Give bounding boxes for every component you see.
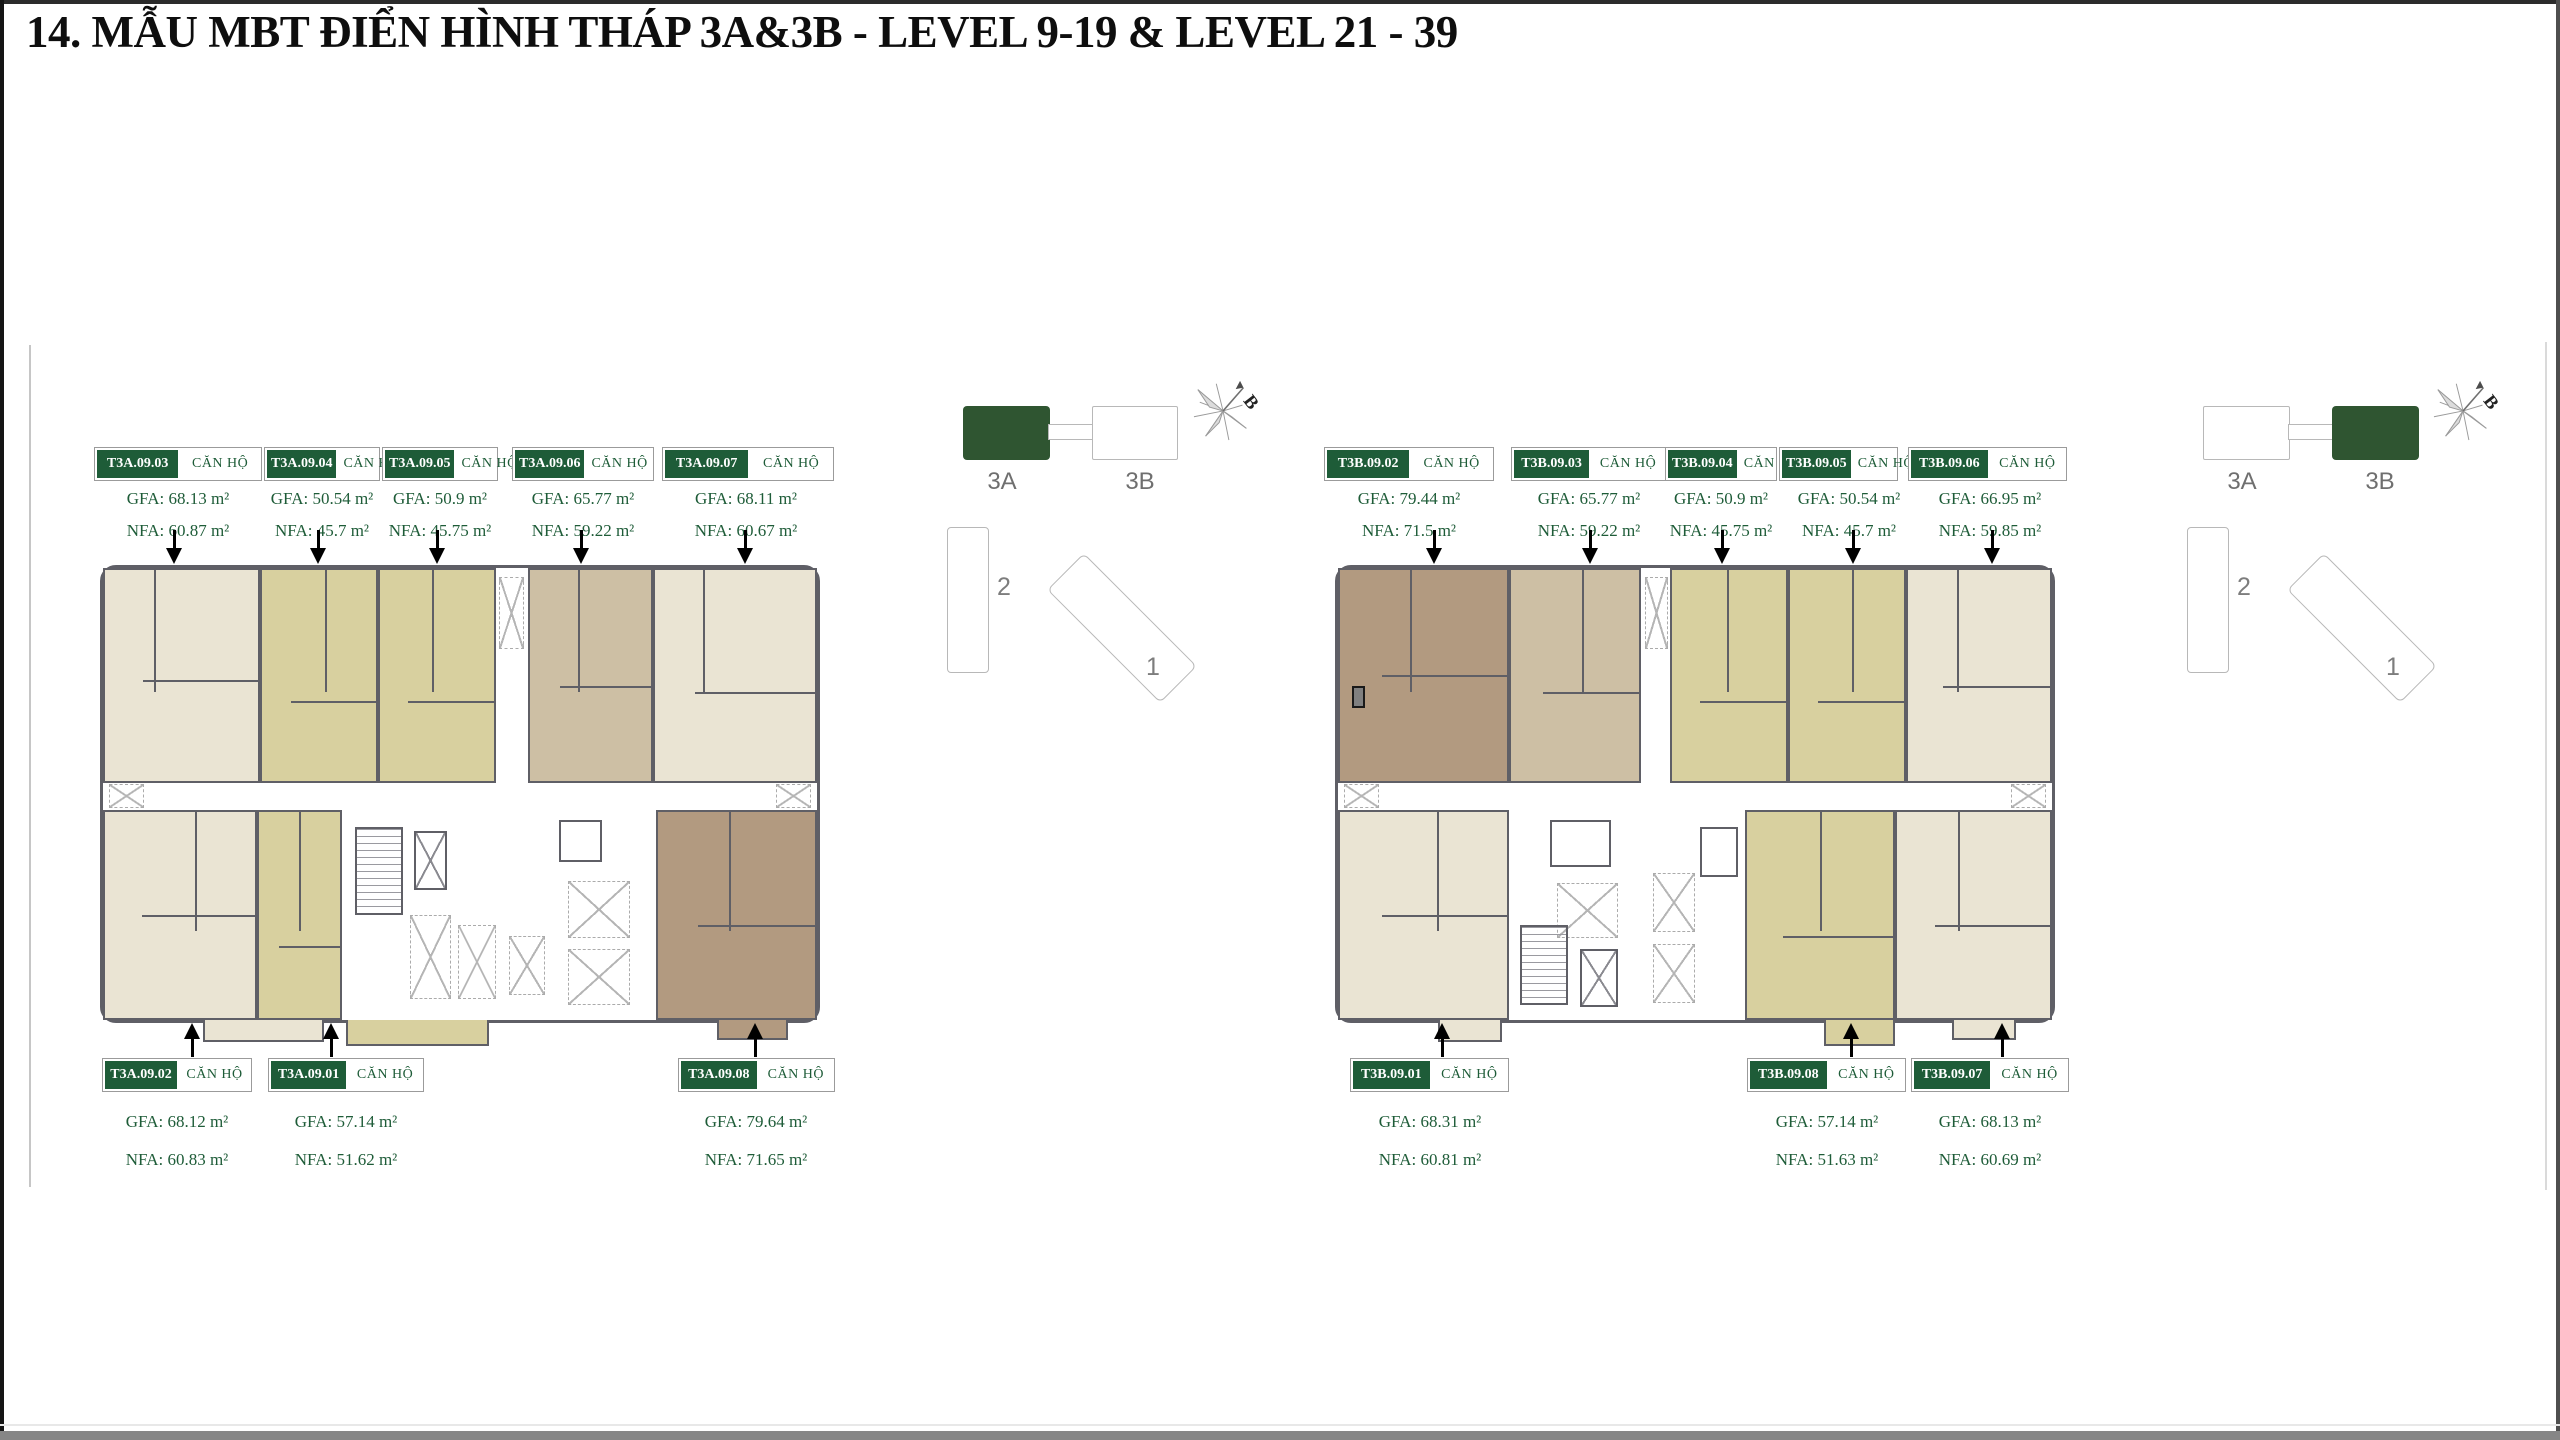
unit-region-t3b-09-05 — [1788, 568, 1906, 783]
service-box — [1550, 820, 1611, 866]
unit-code: T3B.09.07 — [1914, 1061, 1990, 1089]
shaft-icon — [499, 577, 524, 649]
corridor — [103, 783, 817, 810]
keyplan-label-2: 2 — [2237, 573, 2251, 602]
unit-code: T3A.09.02 — [105, 1061, 177, 1089]
unit-nfa: NFA: 59.22 m² — [532, 521, 635, 541]
service-box — [559, 820, 602, 862]
compass-north-label: B — [1240, 391, 1263, 413]
unit-nfa: NFA: 51.62 m² — [295, 1150, 398, 1170]
unit-region-t3a-09-07 — [653, 568, 817, 783]
compass-icon: B — [1186, 376, 1264, 442]
unit-chip-t3a-09-02: T3A.09.02 CĂN HỘ — [102, 1058, 252, 1092]
elevator-shaft-icon — [414, 831, 446, 890]
unit-type-label: CĂN HỘ — [1993, 1061, 2066, 1089]
core-area — [342, 810, 503, 1020]
unit-chip-t3a-09-07: T3A.09.07 CĂN HỘ — [662, 447, 834, 481]
keyplan-label-1: 1 — [2386, 653, 2400, 682]
unit-region-t3b-09-02 — [1338, 568, 1509, 783]
unit-gfa: GFA: 68.31 m² — [1379, 1112, 1482, 1132]
unit-chip-t3b-09-06: T3B.09.06 CĂN HỘ — [1908, 447, 2067, 481]
unit-chip-t3b-09-02: T3B.09.02 CĂN HỘ — [1324, 447, 1494, 481]
floorplan-3b — [1335, 565, 2055, 1023]
unit-gfa: GFA: 65.77 m² — [1538, 489, 1641, 509]
unit-chip-t3b-09-07: T3B.09.07 CĂN HỘ — [1911, 1058, 2069, 1092]
frame-top-border — [0, 0, 2560, 4]
core-area — [553, 810, 657, 1020]
sheet-divider-right — [2545, 342, 2547, 1190]
unit-gfa: GFA: 65.77 m² — [532, 489, 635, 509]
unit-region-t3a-09-05 — [378, 568, 496, 783]
unit-nfa: NFA: 60.83 m² — [126, 1150, 229, 1170]
keyplan-connector — [2288, 424, 2334, 440]
shaft-icon — [1653, 944, 1695, 1003]
unit-gfa: GFA: 57.14 m² — [1776, 1112, 1879, 1132]
unit-code: T3A.09.04 — [267, 450, 336, 478]
keyplan-building-1-outline — [1047, 553, 1197, 703]
unit-code: T3A.09.01 — [271, 1061, 346, 1089]
unit-type-label: CĂN HỘ — [1991, 450, 2064, 478]
unit-nfa: NFA: 45.7 m² — [1802, 521, 1896, 541]
unit-type-label: CĂN HỘ — [181, 450, 259, 478]
unit-gfa: GFA: 68.13 m² — [127, 489, 230, 509]
compass-north-label: B — [2480, 391, 2503, 413]
unit-nfa: NFA: 71.65 m² — [705, 1150, 808, 1170]
balcony-tab — [1824, 1020, 1895, 1046]
corridor-end-icon — [776, 784, 812, 808]
unit-type-label: CĂN HỘ — [751, 450, 831, 478]
unit-region-t3a-09-01 — [257, 810, 343, 1020]
unit-gfa: GFA: 50.9 m² — [1674, 489, 1768, 509]
keyplan-label-3a: 3A — [2227, 468, 2256, 496]
unit-type-label: CĂN HỘ — [1433, 1061, 1506, 1089]
sheet-divider-left — [29, 345, 31, 1187]
unit-region-t3a-09-08 — [656, 810, 817, 1020]
unit-region-t3b-09-06 — [1906, 568, 2052, 783]
unit-code: T3A.09.03 — [97, 450, 178, 478]
keyplan-label-3b: 3B — [1125, 468, 1154, 496]
unit-region-t3b-09-04 — [1670, 568, 1788, 783]
unit-region-t3a-09-06 — [528, 568, 653, 783]
unit-type-label: CĂN HỘ — [1830, 1061, 1903, 1089]
unit-code: T3B.09.06 — [1911, 450, 1988, 478]
unit-gfa: GFA: 50.54 m² — [1798, 489, 1901, 509]
corridor-end-icon — [1344, 784, 1380, 808]
unit-gfa: GFA: 66.95 m² — [1939, 489, 2042, 509]
floorplan-sheet: 14. MẪU MBT ĐIỂN HÌNH THÁP 3A&3B - LEVEL… — [0, 0, 2560, 1440]
unit-nfa: NFA: 45.75 m² — [389, 521, 492, 541]
unit-type-label: CĂN HỘ — [1412, 450, 1491, 478]
unit-region-t3a-09-02 — [103, 810, 257, 1020]
shaft-icon — [458, 925, 497, 999]
unit-code: T3B.09.01 — [1353, 1061, 1430, 1089]
unit-chip-t3a-09-04: T3A.09.04 CĂN HỘ — [264, 447, 380, 481]
unit-nfa: NFA: 59.85 m² — [1939, 521, 2042, 541]
keyplan-tower-3a-outline — [2203, 406, 2290, 460]
keyplan-tower-3b-outline — [1092, 406, 1178, 460]
shaft-icon — [1653, 873, 1695, 932]
frame-bottom-border — [0, 1431, 2560, 1440]
unit-gfa: GFA: 68.13 m² — [1939, 1112, 2042, 1132]
frame-right-border — [2556, 0, 2560, 1440]
unit-region-t3b-09-08 — [1745, 810, 1895, 1020]
unit-gfa: GFA: 68.12 m² — [126, 1112, 229, 1132]
keyplan-tower-3a-highlight — [963, 406, 1050, 460]
unit-gfa: GFA: 57.14 m² — [295, 1112, 398, 1132]
unit-code: T3B.09.05 — [1782, 450, 1851, 478]
corridor-end-icon — [2011, 784, 2047, 808]
shaft-icon — [410, 915, 452, 999]
unit-region-t3b-09-01 — [1338, 810, 1509, 1020]
unit-chip-t3a-09-05: T3A.09.05 CĂN HỘ — [382, 447, 498, 481]
keyplan-connector — [1048, 424, 1094, 440]
balcony-tab — [346, 1020, 489, 1046]
unit-code: T3A.09.06 — [515, 450, 584, 478]
shaft-icon — [1645, 577, 1668, 649]
keyplan-building-2-outline — [947, 527, 989, 673]
frame-left-border — [0, 0, 4, 1440]
unit-code: T3B.09.08 — [1750, 1061, 1827, 1089]
keyplan-label-3b: 3B — [2365, 468, 2394, 496]
shaft-icon — [568, 881, 630, 938]
keyplan-building-2-outline — [2187, 527, 2229, 673]
unit-chip-t3b-09-04: T3B.09.04 CĂN HỘ — [1665, 447, 1777, 481]
unit-chip-t3a-09-06: T3A.09.06 CĂN HỘ — [512, 447, 654, 481]
unit-chip-t3a-09-03: T3A.09.03 CĂN HỘ — [94, 447, 262, 481]
unit-nfa: NFA: 51.63 m² — [1776, 1150, 1879, 1170]
unit-code: T3A.09.07 — [665, 450, 748, 478]
shaft-icon — [568, 949, 630, 1006]
page-title: 14. MẪU MBT ĐIỂN HÌNH THÁP 3A&3B - LEVEL… — [26, 6, 1458, 58]
keyplan-label-1: 1 — [1146, 653, 1160, 682]
lobby-area — [503, 810, 553, 1020]
keyplan-label-2: 2 — [997, 573, 1011, 602]
unit-type-label: CĂN HỘ — [349, 1061, 421, 1089]
unit-chip-t3b-09-08: T3B.09.08 CĂN HỘ — [1747, 1058, 1906, 1092]
unit-type-label: CĂN HỘ — [180, 1061, 249, 1089]
shaft-icon — [509, 936, 545, 995]
unit-nfa: NFA: 60.87 m² — [127, 521, 230, 541]
core-area — [1509, 810, 1645, 1020]
unit-type-label: CĂN HỘ — [1592, 450, 1664, 478]
corridor-end-icon — [109, 784, 145, 808]
elevator-shaft-icon — [1580, 949, 1618, 1008]
unit-gfa: GFA: 50.54 m² — [271, 489, 374, 509]
unit-region-t3a-09-04 — [260, 568, 378, 783]
stairs-icon — [1520, 925, 1567, 1005]
unit-nfa: NFA: 60.69 m² — [1939, 1150, 2042, 1170]
unit-chip-t3a-09-08: T3A.09.08 CĂN HỘ — [678, 1058, 835, 1092]
service-box — [1700, 827, 1738, 877]
stairs-icon — [355, 827, 403, 915]
unit-chip-t3a-09-01: T3A.09.01 CĂN HỘ — [268, 1058, 424, 1092]
plan-marker — [1352, 686, 1365, 708]
lobby-area — [1645, 810, 1745, 1020]
unit-nfa: NFA: 60.81 m² — [1379, 1150, 1482, 1170]
unit-region-t3a-09-03 — [103, 568, 260, 783]
unit-code: T3B.09.03 — [1514, 450, 1589, 478]
corridor — [1338, 783, 2052, 810]
unit-gfa: GFA: 68.11 m² — [695, 489, 797, 509]
unit-region-t3b-09-03 — [1509, 568, 1641, 783]
unit-code: T3B.09.02 — [1327, 450, 1409, 478]
unit-chip-t3b-09-03: T3B.09.03 CĂN HỘ — [1511, 447, 1667, 481]
unit-code: T3B.09.04 — [1668, 450, 1737, 478]
unit-region-t3b-09-07 — [1895, 810, 2052, 1020]
floorplan-3a — [100, 565, 820, 1023]
unit-chip-t3b-09-01: T3B.09.01 CĂN HỘ — [1350, 1058, 1509, 1092]
unit-gfa: GFA: 50.9 m² — [393, 489, 487, 509]
unit-code: T3A.09.05 — [385, 450, 454, 478]
unit-type-label: CĂN HỘ — [760, 1061, 832, 1089]
unit-gfa: GFA: 79.64 m² — [705, 1112, 808, 1132]
balcony-tab — [203, 1020, 324, 1042]
unit-nfa: NFA: 45.7 m² — [275, 521, 369, 541]
keyplan-tower-3b-highlight — [2332, 406, 2419, 460]
unit-type-label: CĂN HỘ — [587, 450, 651, 478]
unit-nfa: NFA: 71.5 m² — [1362, 521, 1456, 541]
compass-icon: B — [2426, 376, 2504, 442]
keyplan-label-3a: 3A — [987, 468, 1016, 496]
unit-code: T3A.09.08 — [681, 1061, 757, 1089]
unit-gfa: GFA: 79.44 m² — [1358, 489, 1461, 509]
keyplan-building-1-outline — [2287, 553, 2437, 703]
unit-chip-t3b-09-05: T3B.09.05 CĂN HỘ — [1779, 447, 1898, 481]
frame-bottom-light-line — [0, 1424, 2560, 1426]
